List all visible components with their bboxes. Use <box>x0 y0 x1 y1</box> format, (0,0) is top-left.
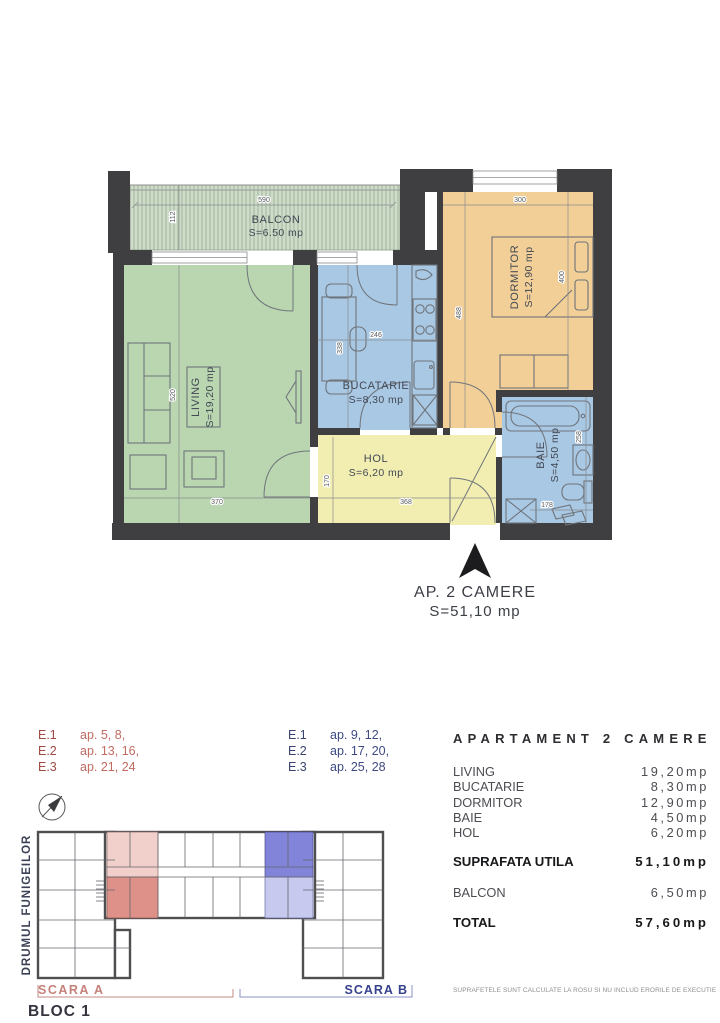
legend-scara-b: E.1ap. 9, 12, E.2ap. 17, 20, E.3ap. 25, … <box>288 728 389 775</box>
row-label: DORMITOR <box>453 795 522 810</box>
total-label: TOTAL <box>453 915 496 930</box>
row-value: 8,30mp <box>651 779 709 794</box>
floor-label: E.3 <box>288 760 330 776</box>
left-wing <box>38 832 115 978</box>
scara-b-label: SCARA B <box>345 983 408 997</box>
dim-baie-w: 178 <box>541 502 553 509</box>
wall-kitchen-dormitor <box>437 192 443 428</box>
summary-row: HOL6,20mp <box>453 825 709 840</box>
summary-row: LIVING19,20mp <box>453 764 709 779</box>
floorplan-page: { "floorplan": { "rooms": { "balcon": {"… <box>0 0 720 1023</box>
dim-hol-h: 170 <box>324 475 331 487</box>
hol-area: S=6,20 mp <box>349 467 404 479</box>
legend-row: E.1ap. 5, 8, <box>38 728 139 744</box>
wall-dormitor-baie <box>502 390 593 397</box>
dim-hol-w: 368 <box>400 499 412 506</box>
legend-row: E.3ap. 21, 24 <box>38 760 139 776</box>
summary-row: BAIE4,50mp <box>453 810 709 825</box>
wall-right <box>593 169 612 523</box>
apartments-label: ap. 9, 12, <box>330 728 382 744</box>
unit-scara-b-top <box>265 832 313 877</box>
dim-balcon-w: 590 <box>258 197 270 204</box>
apartment-area: S=51,10 mp <box>429 603 520 620</box>
street-label: DRUMUL FUNIGEILOR <box>21 835 33 976</box>
baie-area: S=4,50 mp <box>549 428 561 483</box>
row-value: 12,90mp <box>641 795 709 810</box>
row-value: 19,20mp <box>641 764 709 779</box>
living-area: S=19,20 mp <box>204 367 216 428</box>
bucatarie-label: BUCATARIE <box>343 380 410 392</box>
row-label: HOL <box>453 825 479 840</box>
baie-label: BAIE <box>535 441 547 468</box>
hol-room-fill <box>318 435 496 525</box>
summary-subtotal: SUPRAFATA UTILA51,10mp <box>453 854 709 869</box>
wall-dormitor-hol-a <box>443 428 450 435</box>
dim-baie-h: 258 <box>576 431 583 443</box>
summary-rows: LIVING19,20mp BUCATARIE8,30mp DORMITOR12… <box>453 764 709 840</box>
living-label: LIVING <box>190 377 202 417</box>
row-label: LIVING <box>453 764 495 779</box>
dim-bucatarie-h: 338 <box>337 342 344 354</box>
bucatarie-area: S=8,30 mp <box>349 394 404 406</box>
legend-row: E.1ap. 9, 12, <box>288 728 389 744</box>
subtotal-value: 51,10mp <box>635 854 709 869</box>
apartment-title: AP. 2 CAMERE <box>414 584 536 601</box>
bloc-label: BLOC 1 <box>28 1003 91 1020</box>
north-compass-icon <box>39 794 65 820</box>
dim-dormitor-h: 488 <box>456 307 463 319</box>
disclaimer-footnote: SUPRAFETELE SUNT CALCULATE LA ROSU SI NU… <box>453 987 715 994</box>
entrance-arrow-icon <box>459 543 491 578</box>
dim-living-h: 520 <box>170 389 177 401</box>
row-label: BUCATARIE <box>453 779 524 794</box>
apartments-label: ap. 17, 20, <box>330 744 389 760</box>
unit-scara-a-top <box>107 832 158 877</box>
summary-panel: APARTAMENT 2 CAMERE LIVING19,20mp BUCATA… <box>453 731 709 930</box>
wall-baie-hol-a <box>496 390 502 412</box>
legend-row: E.3ap. 25, 28 <box>288 760 389 776</box>
wall-bottom-right <box>500 523 612 540</box>
summary-row: DORMITOR12,90mp <box>453 795 709 810</box>
apartments-label: ap. 13, 16, <box>80 744 139 760</box>
scara-a-label: SCARA A <box>38 983 105 997</box>
summary-balcon: BALCON6,50mp <box>453 885 709 900</box>
legend-scara-a: E.1ap. 5, 8, E.2ap. 13, 16, E.3ap. 21, 2… <box>38 728 139 775</box>
wall-living-kitchen <box>310 265 318 447</box>
wall-living-hol <box>310 497 318 523</box>
apartments-label: ap. 21, 24 <box>80 760 136 776</box>
dormitor-label: DORMITOR <box>509 245 521 309</box>
balcon-label: BALCON <box>252 214 301 226</box>
wall-pillar-topleft <box>108 171 130 253</box>
summary-title: APARTAMENT 2 CAMERE <box>453 731 709 746</box>
row-value: 6,20mp <box>651 825 709 840</box>
legend-row: E.2ap. 17, 20, <box>288 744 389 760</box>
floor-label: E.2 <box>288 744 330 760</box>
wall-bottom-left <box>112 523 450 540</box>
wall-kitchen-top <box>393 250 443 265</box>
site-plan: DRUMUL FUNIGEILOR SCARA A SCARA B BLOC 1 <box>20 785 420 1023</box>
dim-dormitor-bed: 400 <box>559 271 566 283</box>
row-value: 4,50mp <box>651 810 709 825</box>
summary-row: BUCATARIE8,30mp <box>453 779 709 794</box>
balcon-value: 6,50mp <box>651 885 709 900</box>
wall-kitchen-hol-a <box>318 428 360 435</box>
summary-total: TOTAL57,60mp <box>453 915 709 930</box>
balcon-label: BALCON <box>453 885 506 900</box>
unit-scara-a-bottom <box>107 877 158 918</box>
dim-dormitor-w: 300 <box>514 197 526 204</box>
apartments-label: ap. 25, 28 <box>330 760 386 776</box>
row-label: BAIE <box>453 810 482 825</box>
wall-living-balcony-a <box>124 250 152 265</box>
subtotal-label: SUPRAFATA UTILA <box>453 854 574 869</box>
floor-label: E.1 <box>38 728 80 744</box>
wall-top-center <box>400 169 473 192</box>
apartments-label: ap. 5, 8, <box>80 728 125 744</box>
total-value: 57,60mp <box>635 915 709 930</box>
living-room-fill <box>124 265 310 525</box>
wall-left <box>113 250 124 525</box>
dim-bucatarie-w: 246 <box>370 332 382 339</box>
dim-balcon-h: 112 <box>170 211 177 222</box>
balcon-area: S=6.50 mp <box>249 227 304 239</box>
floor-label: E.2 <box>38 744 80 760</box>
floor-label: E.3 <box>38 760 80 776</box>
wall-living-balcony-b <box>293 250 317 265</box>
hol-label: HOL <box>364 453 388 465</box>
left-wing-extension <box>115 930 130 978</box>
wall-baie-hol-b <box>496 457 502 523</box>
apartment-floorplan: 590 112 520 370 246 338 300 488 400 368 … <box>100 165 620 625</box>
dim-living-w: 370 <box>211 499 223 506</box>
legend-row: E.2ap. 13, 16, <box>38 744 139 760</box>
entrance-annotation: AP. 2 CAMERE S=51,10 mp <box>414 543 536 620</box>
dormitor-area: S=12,90 mp <box>523 247 535 308</box>
building-outline <box>38 832 383 978</box>
unit-scara-b-bottom <box>265 877 313 918</box>
floor-label: E.1 <box>288 728 330 744</box>
wall-kitchen-hol-b <box>410 428 437 435</box>
wall-dormitor-hol-b <box>495 428 502 435</box>
